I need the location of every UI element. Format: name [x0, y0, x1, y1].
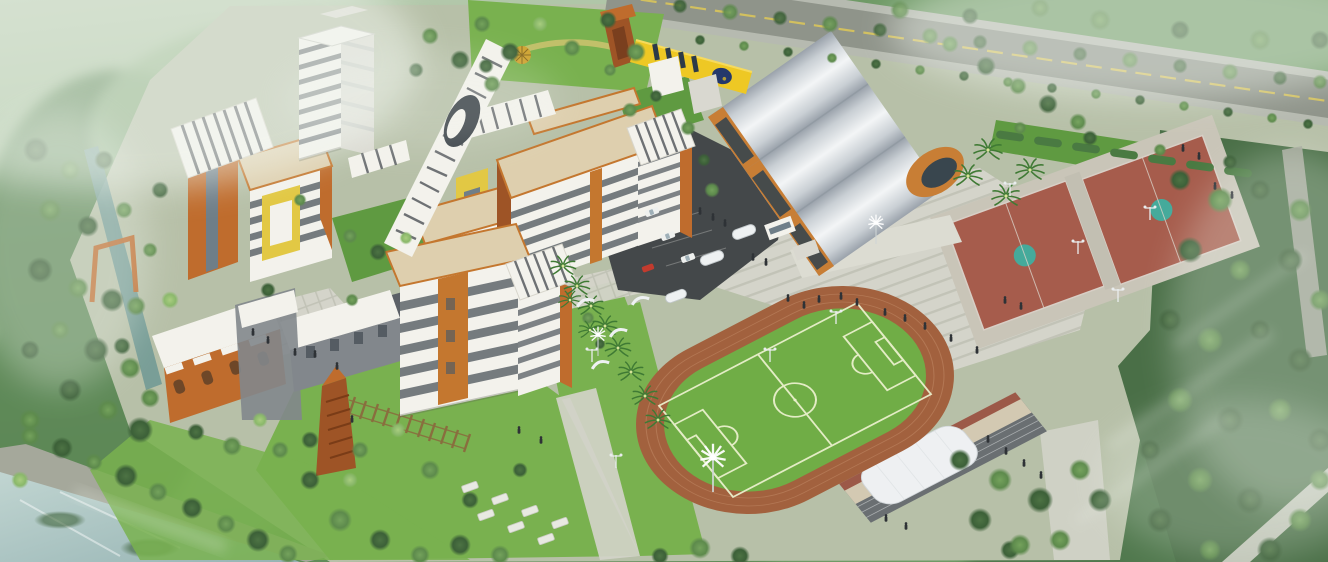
- campus-rendering-stage: [0, 0, 1328, 562]
- campus-aerial-rendering: [0, 0, 1328, 562]
